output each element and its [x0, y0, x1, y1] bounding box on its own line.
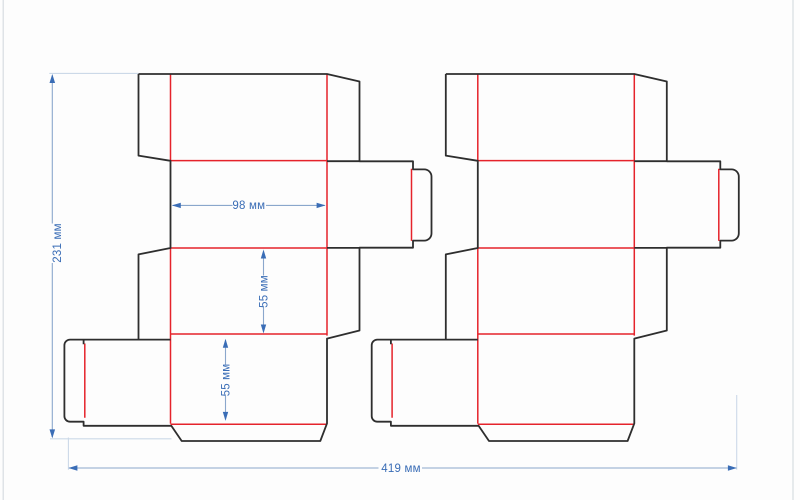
dieline-drawing: 231 мм 98 мм 55 мм 55 мм 419 мм	[0, 0, 800, 500]
dimension-height-label: 231 мм	[52, 223, 64, 262]
dimension-total-width-label: 419 мм	[381, 463, 420, 475]
cut-lines-right	[372, 74, 739, 441]
cut-lines-left	[64, 74, 431, 441]
crease-lines-right	[392, 74, 719, 424]
dimension-depth-lower-label: 55 мм	[221, 364, 233, 397]
dimension-depth-upper-label: 55 мм	[259, 275, 271, 308]
dieline-blank-right	[372, 74, 739, 441]
crease-lines-left	[85, 74, 412, 424]
drawing-canvas: 231 мм 98 мм 55 мм 55 мм 419 мм	[0, 0, 800, 500]
dieline-blank-left	[64, 74, 431, 441]
dimension-panel-width-label: 98 мм	[232, 200, 265, 212]
